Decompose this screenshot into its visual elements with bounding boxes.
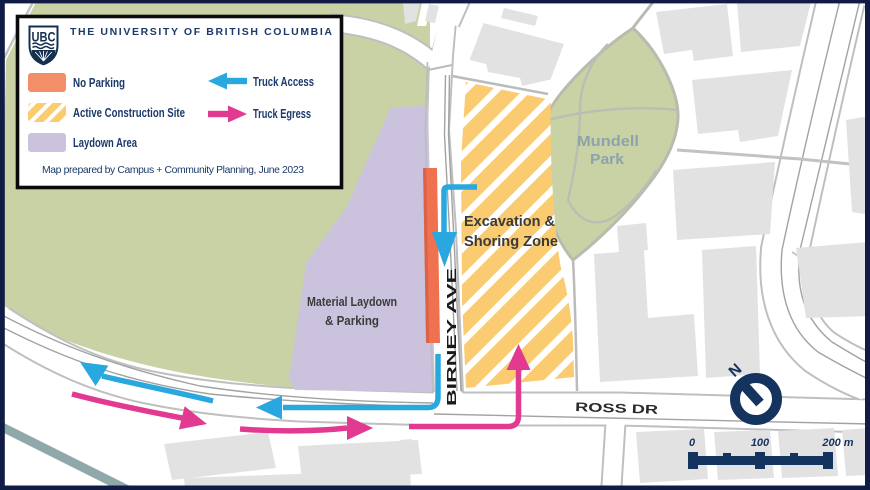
svg-text:Shoring Zone: Shoring Zone (464, 234, 558, 250)
svg-text:Truck Egress: Truck Egress (253, 106, 311, 121)
svg-text:200 m: 200 m (821, 437, 853, 449)
svg-text:No Parking: No Parking (73, 75, 125, 90)
svg-text:Park: Park (590, 152, 625, 168)
svg-text:Laydown Area: Laydown Area (73, 135, 138, 150)
svg-text:Truck Access: Truck Access (253, 74, 314, 89)
svg-text:Map prepared by Campus + Commu: Map prepared by Campus + Community Plann… (42, 165, 304, 176)
svg-text:Mundell: Mundell (577, 134, 639, 150)
svg-text:BIRNEY AVE: BIRNEY AVE (444, 267, 459, 406)
svg-text:0: 0 (689, 437, 696, 449)
svg-text:Material Laydown: Material Laydown (307, 294, 397, 309)
svg-text:100: 100 (751, 437, 770, 449)
svg-text:THE UNIVERSITY OF BRITISH COLU: THE UNIVERSITY OF BRITISH COLUMBIA (70, 26, 332, 38)
svg-text:Active Construction Site: Active Construction Site (73, 105, 185, 120)
svg-text:ROSS DR: ROSS DR (575, 400, 658, 417)
svg-text:Excavation &: Excavation & (464, 214, 556, 230)
svg-text:& Parking: & Parking (325, 313, 379, 328)
